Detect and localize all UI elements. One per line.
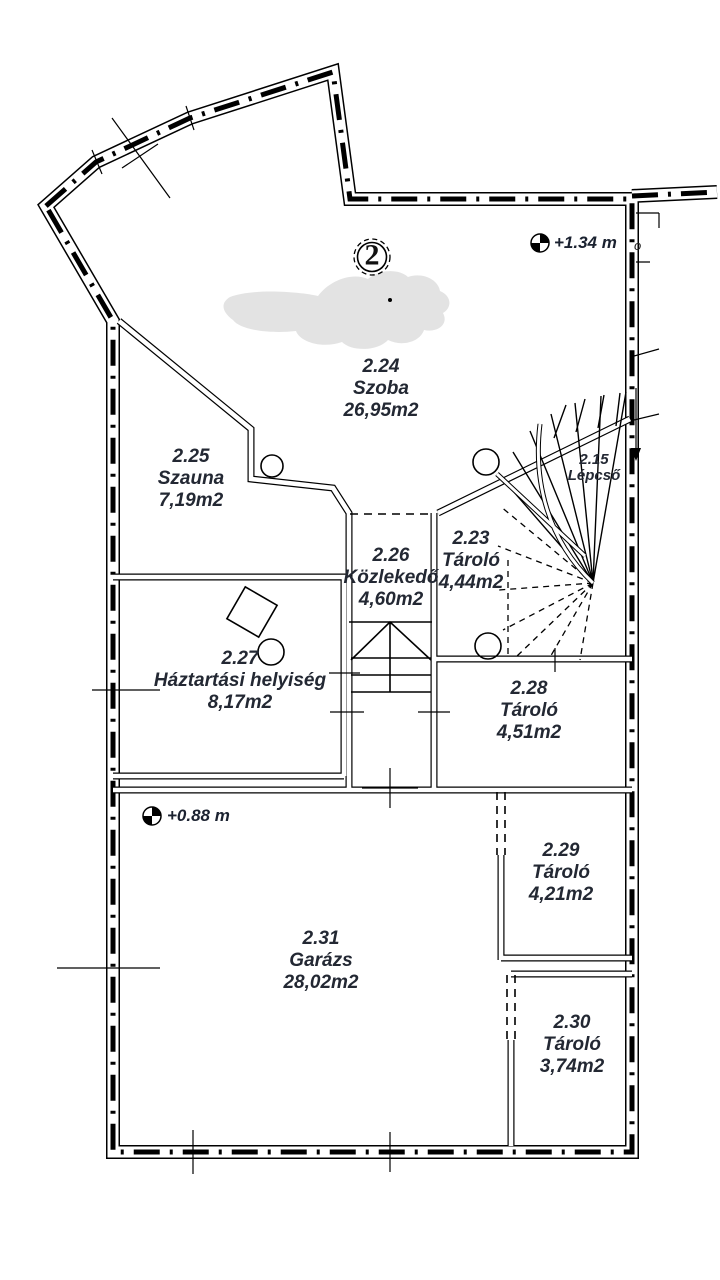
lamp-icon xyxy=(475,633,501,659)
level-marker-upper-icon xyxy=(531,234,549,252)
floor-plan-drawing xyxy=(0,0,720,1280)
room-name: Háztartási helyiség xyxy=(154,670,326,692)
room-name: Tároló xyxy=(529,862,593,884)
room-name: Tároló xyxy=(540,1034,604,1056)
lamp-icon xyxy=(473,449,499,475)
room-area: 4,44m2 xyxy=(439,572,503,594)
room-label-kozlekedo: 2.26 Közlekedő 4,60m2 xyxy=(343,545,438,611)
room-id: 2.31 xyxy=(283,928,358,950)
room-label-tarolo-230: 2.30 Tároló 3,74m2 xyxy=(540,1012,604,1078)
room-id: 2.25 xyxy=(158,446,225,468)
room-id: 2.30 xyxy=(540,1012,604,1034)
room-name: Garázs xyxy=(283,950,358,972)
room-id: 2.24 xyxy=(343,356,418,378)
level-label-upper: +1.34 m xyxy=(554,233,617,253)
floor-plan-page: 2 +1.34 m +0.88 m o 2.24 Szoba 26,95m2 2… xyxy=(0,0,720,1280)
room-label-tarolo-228: 2.28 Tároló 4,51m2 xyxy=(497,678,561,744)
room-label-lepcso: 2.15 Lépcső xyxy=(568,452,621,484)
room-id: 2.29 xyxy=(529,840,593,862)
room-label-szauna: 2.25 Szauna 7,19m2 xyxy=(158,446,225,512)
diamond-fixture-icon xyxy=(227,587,277,637)
room-label-tarolo-229: 2.29 Tároló 4,21m2 xyxy=(529,840,593,906)
edge-label-fragment: o xyxy=(634,238,641,253)
room-name: Szoba xyxy=(343,378,418,400)
erased-smudge xyxy=(224,271,450,349)
room-area: 26,95m2 xyxy=(343,400,418,422)
room-name: Közlekedő xyxy=(343,567,438,589)
room-id: 2.15 xyxy=(568,452,621,468)
room-label-garazs: 2.31 Garázs 28,02m2 xyxy=(283,928,358,994)
room-area: 8,17m2 xyxy=(154,692,326,714)
room-id: 2.28 xyxy=(497,678,561,700)
room-name: Tároló xyxy=(497,700,561,722)
room-name: Szauna xyxy=(158,468,225,490)
room-id: 2.27 xyxy=(154,648,326,670)
room-name: Tároló xyxy=(439,550,503,572)
room-area: 28,02m2 xyxy=(283,972,358,994)
room-label-tarolo-223: 2.23 Tároló 4,44m2 xyxy=(439,528,503,594)
level-marker-lower-icon xyxy=(143,807,161,825)
level-label-lower: +0.88 m xyxy=(167,806,230,826)
room-area: 4,21m2 xyxy=(529,884,593,906)
room-label-haztartasi: 2.27 Háztartási helyiség 8,17m2 xyxy=(154,648,326,714)
straight-stair xyxy=(349,622,432,692)
lamp-icon xyxy=(261,455,283,477)
room-area: 7,19m2 xyxy=(158,490,225,512)
room-id: 2.26 xyxy=(343,545,438,567)
room-area: 4,51m2 xyxy=(497,722,561,744)
room-area: 4,60m2 xyxy=(343,589,438,611)
room-name: Lépcső xyxy=(568,468,621,484)
drawing-number: 2 xyxy=(365,239,380,273)
room-label-szoba: 2.24 Szoba 26,95m2 xyxy=(343,356,418,422)
room-area: 3,74m2 xyxy=(540,1056,604,1078)
room-id: 2.23 xyxy=(439,528,503,550)
